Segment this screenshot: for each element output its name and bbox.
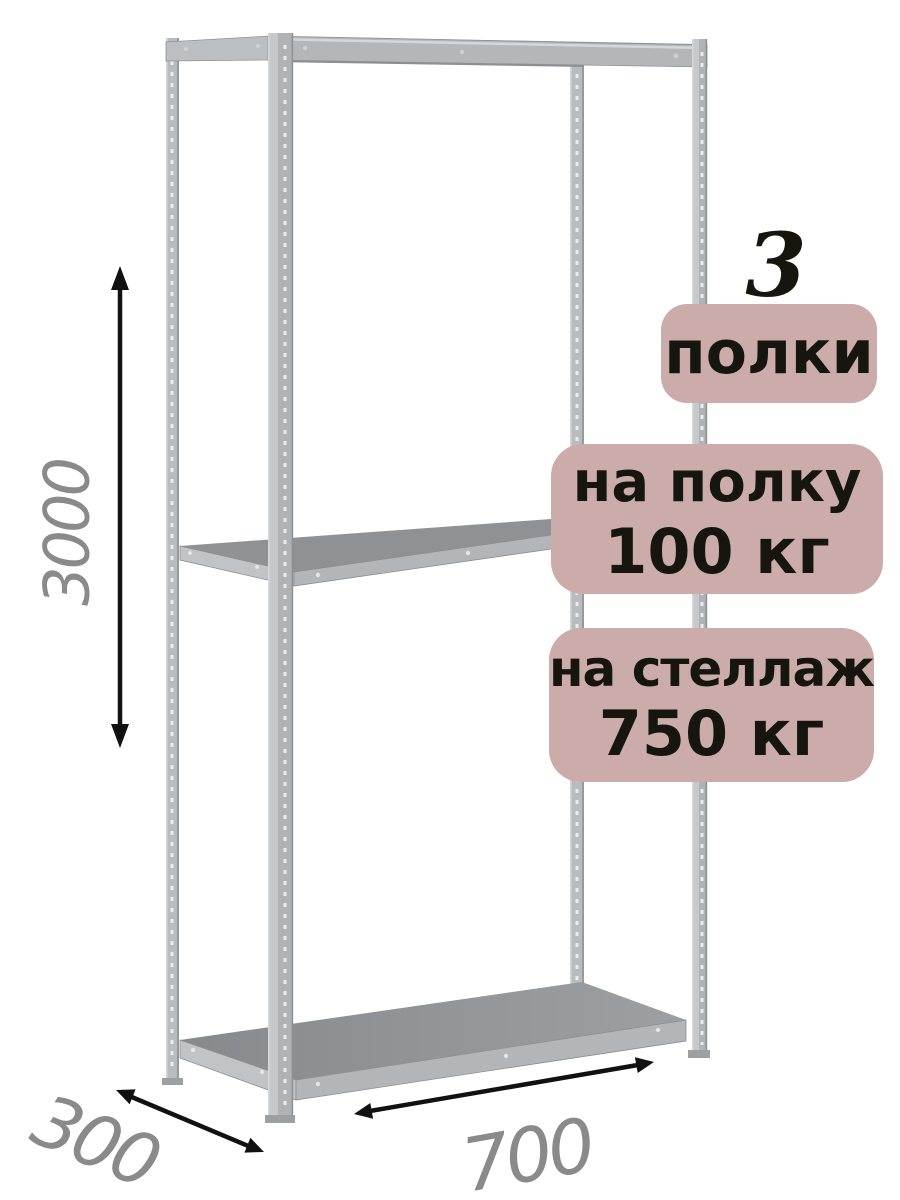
post-foot	[688, 1050, 710, 1058]
rack-load-line2: 750 кг	[599, 698, 824, 769]
shelving-rack-illustration	[0, 0, 900, 1200]
top-shelf	[166, 36, 707, 67]
height-dimension-arrow	[111, 266, 129, 748]
post-front-left	[265, 33, 295, 1123]
post-back-left	[162, 38, 183, 1085]
shelf-load-line2: 100 кг	[604, 516, 829, 587]
product-image-shelving-rack: 3000 300 700 3 полки на полку 100 кг на …	[0, 0, 900, 1200]
shelves-count-badge: полки	[661, 304, 877, 403]
rack-load-badge: на стеллаж 750 кг	[549, 628, 874, 782]
shelves-count-label: полки	[664, 319, 873, 388]
shelf-load-line1: на полку	[573, 451, 862, 515]
post-foot	[265, 1115, 295, 1123]
post-foot	[162, 1078, 183, 1085]
bottom-shelf	[180, 982, 686, 1100]
shelves-count-number: 3	[745, 213, 806, 317]
rack-load-line1: на стеллаж	[549, 641, 874, 699]
middle-shelf	[180, 518, 565, 586]
height-dimension-label: 3000	[31, 460, 104, 606]
shelf-load-badge: на полку 100 кг	[551, 444, 883, 594]
